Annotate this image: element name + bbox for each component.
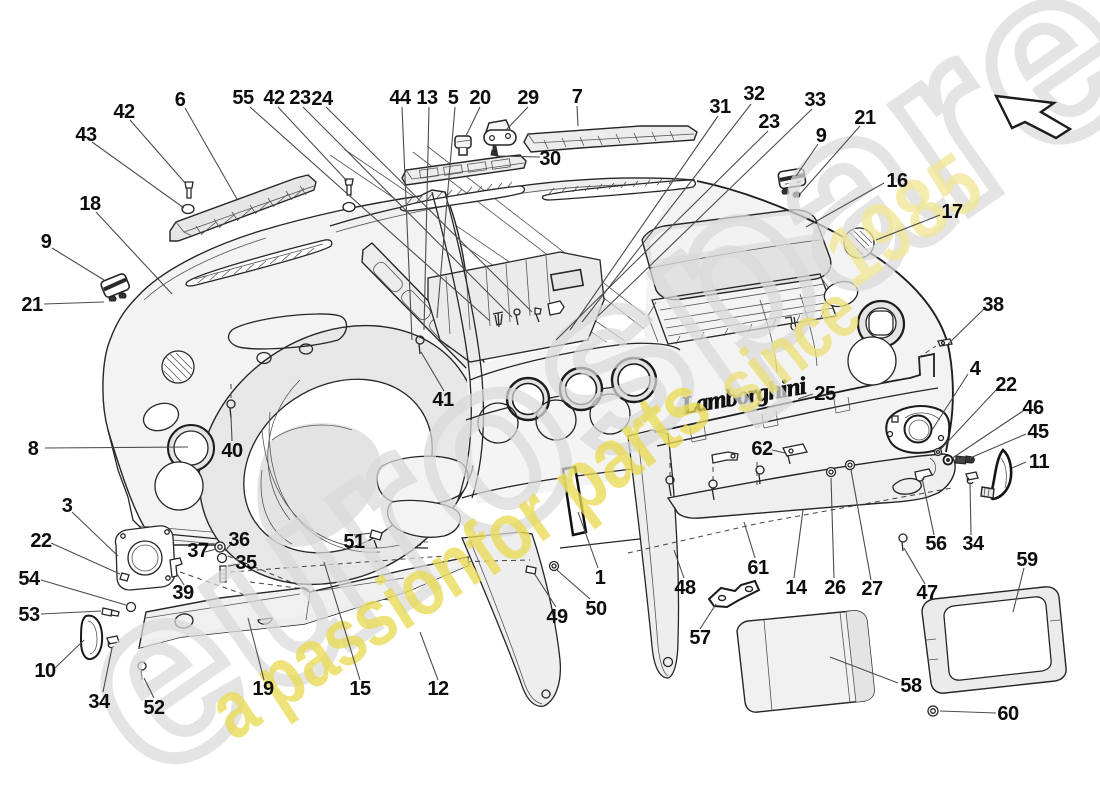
svg-text:6: 6 <box>175 89 186 111</box>
svg-text:19: 19 <box>252 678 274 700</box>
svg-text:25: 25 <box>814 383 836 405</box>
svg-text:51: 51 <box>343 531 365 553</box>
svg-text:39: 39 <box>172 582 194 604</box>
svg-text:24: 24 <box>311 88 334 110</box>
svg-text:1: 1 <box>595 567 606 589</box>
svg-text:43: 43 <box>75 124 97 146</box>
svg-text:33: 33 <box>804 89 826 111</box>
svg-text:20: 20 <box>469 87 491 109</box>
svg-text:50: 50 <box>585 598 607 620</box>
svg-text:23: 23 <box>758 111 780 133</box>
svg-text:21: 21 <box>854 107 876 129</box>
svg-text:32: 32 <box>743 83 765 105</box>
svg-text:12: 12 <box>427 678 449 700</box>
svg-text:40: 40 <box>221 440 243 462</box>
svg-text:30: 30 <box>539 148 561 170</box>
svg-text:59: 59 <box>1016 549 1038 571</box>
svg-text:42: 42 <box>263 87 285 109</box>
svg-text:45: 45 <box>1027 421 1049 443</box>
svg-text:31: 31 <box>709 96 731 118</box>
svg-text:34: 34 <box>88 691 111 713</box>
svg-text:34: 34 <box>962 533 985 555</box>
svg-text:8: 8 <box>28 438 39 460</box>
svg-text:41: 41 <box>432 389 454 411</box>
svg-text:61: 61 <box>747 557 769 579</box>
svg-text:18: 18 <box>79 193 101 215</box>
svg-text:60: 60 <box>997 703 1019 725</box>
svg-text:58: 58 <box>900 675 922 697</box>
svg-text:17: 17 <box>941 201 963 223</box>
svg-text:44: 44 <box>389 87 412 109</box>
svg-text:56: 56 <box>925 533 947 555</box>
svg-text:55: 55 <box>232 87 254 109</box>
svg-text:21: 21 <box>21 294 43 316</box>
svg-text:48: 48 <box>674 577 696 599</box>
svg-text:35: 35 <box>235 552 257 574</box>
svg-text:5: 5 <box>448 87 459 109</box>
svg-text:7: 7 <box>572 86 583 108</box>
svg-text:3: 3 <box>62 495 73 517</box>
svg-text:10: 10 <box>34 660 56 682</box>
svg-text:22: 22 <box>995 374 1017 396</box>
svg-text:53: 53 <box>18 604 40 626</box>
svg-text:23: 23 <box>289 87 311 109</box>
svg-text:27: 27 <box>861 578 883 600</box>
svg-text:62: 62 <box>751 438 773 460</box>
svg-text:9: 9 <box>816 125 827 147</box>
svg-text:11: 11 <box>1029 451 1050 473</box>
svg-text:36: 36 <box>228 529 250 551</box>
svg-text:49: 49 <box>546 606 568 628</box>
svg-text:46: 46 <box>1022 397 1044 419</box>
svg-text:38: 38 <box>982 294 1004 316</box>
svg-text:57: 57 <box>689 627 711 649</box>
svg-text:37: 37 <box>187 540 209 562</box>
svg-text:26: 26 <box>824 577 846 599</box>
svg-text:9: 9 <box>41 231 52 253</box>
svg-text:16: 16 <box>886 170 908 192</box>
svg-text:52: 52 <box>143 697 165 719</box>
svg-text:14: 14 <box>785 577 808 599</box>
svg-text:54: 54 <box>18 568 41 590</box>
svg-text:29: 29 <box>517 87 539 109</box>
svg-text:15: 15 <box>349 678 371 700</box>
svg-text:42: 42 <box>113 101 135 123</box>
svg-text:47: 47 <box>916 582 938 604</box>
svg-text:13: 13 <box>416 87 438 109</box>
svg-text:4: 4 <box>970 358 982 380</box>
svg-text:22: 22 <box>30 530 52 552</box>
